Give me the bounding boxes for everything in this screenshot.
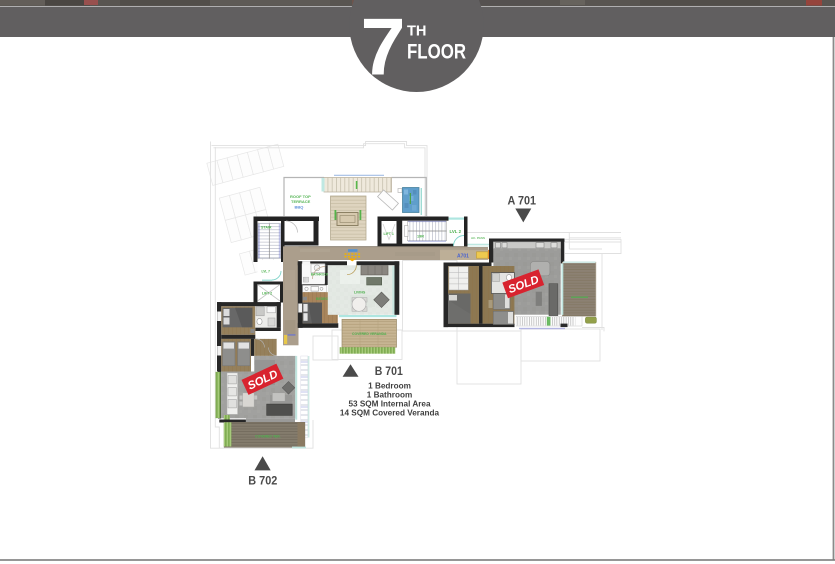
svg-text:19R: 19R bbox=[417, 235, 424, 239]
svg-text:1 Bedroom: 1 Bedroom bbox=[368, 381, 411, 390]
svg-text:TH: TH bbox=[407, 24, 427, 40]
svg-text:14 SQM Covered Veranda: 14 SQM Covered Veranda bbox=[340, 408, 440, 417]
svg-text:A701: A701 bbox=[457, 254, 469, 260]
svg-text:AC. PASS: AC. PASS bbox=[471, 236, 485, 240]
svg-text:FLOOR: FLOOR bbox=[407, 41, 466, 64]
svg-text:LVL 2: LVL 2 bbox=[450, 229, 462, 234]
svg-text:LIVING: LIVING bbox=[354, 291, 366, 295]
svg-text:LVL 7: LVL 7 bbox=[262, 270, 271, 274]
svg-text:B 701: B 701 bbox=[375, 366, 404, 378]
svg-text:BBQ: BBQ bbox=[295, 205, 304, 210]
svg-text:COVERED VERANDA: COVERED VERANDA bbox=[352, 332, 387, 336]
svg-text:1 Bathroom: 1 Bathroom bbox=[367, 390, 413, 399]
svg-text:COVERED VER.: COVERED VER. bbox=[255, 435, 281, 439]
svg-text:TERRACE: TERRACE bbox=[291, 199, 311, 204]
svg-text:A 701: A 701 bbox=[508, 196, 537, 208]
svg-text:LIFT 2: LIFT 2 bbox=[262, 292, 272, 296]
svg-text:STAIR: STAIR bbox=[261, 226, 272, 230]
svg-text:53 SQM Internal Area: 53 SQM Internal Area bbox=[348, 399, 431, 408]
svg-text:B 702: B 702 bbox=[248, 476, 277, 488]
svg-text:BATHROOM: BATHROOM bbox=[311, 272, 330, 276]
svg-text:LIFT 1: LIFT 1 bbox=[384, 232, 394, 236]
svg-text:7: 7 bbox=[361, 3, 406, 93]
